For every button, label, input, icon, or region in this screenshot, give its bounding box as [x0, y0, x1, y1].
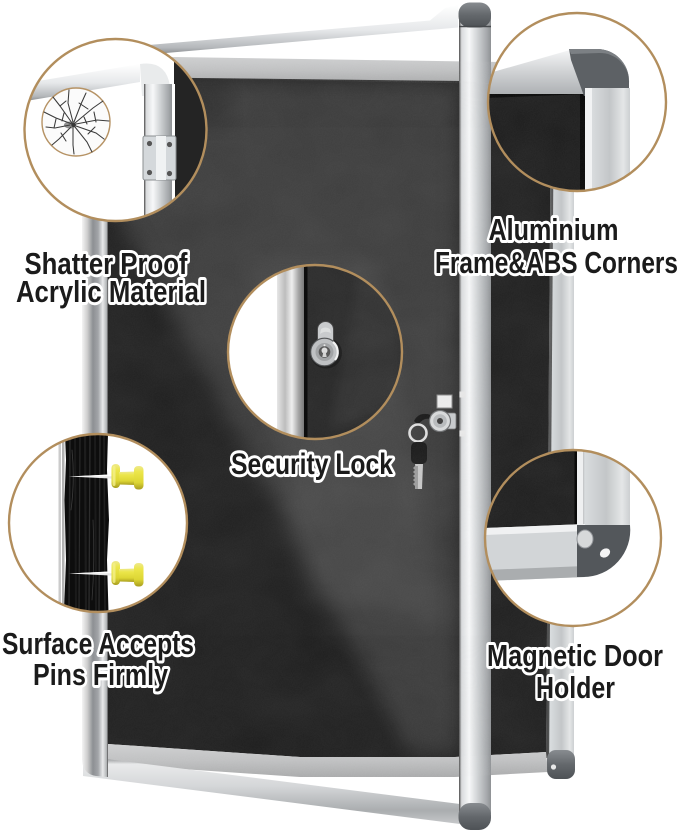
- svg-text:Frame&ABS Corners: Frame&ABS Corners: [435, 245, 678, 280]
- svg-text:Acrylic Material: Acrylic Material: [16, 274, 206, 309]
- svg-text:Security Lock: Security Lock: [231, 448, 393, 481]
- svg-text:Pins Firmly: Pins Firmly: [33, 657, 169, 692]
- svg-text:Magnetic Door: Magnetic Door: [487, 638, 663, 673]
- svg-text:Surface Accepts: Surface Accepts: [2, 626, 194, 661]
- svg-text:Holder: Holder: [536, 670, 615, 705]
- svg-text:Aluminium: Aluminium: [489, 212, 619, 247]
